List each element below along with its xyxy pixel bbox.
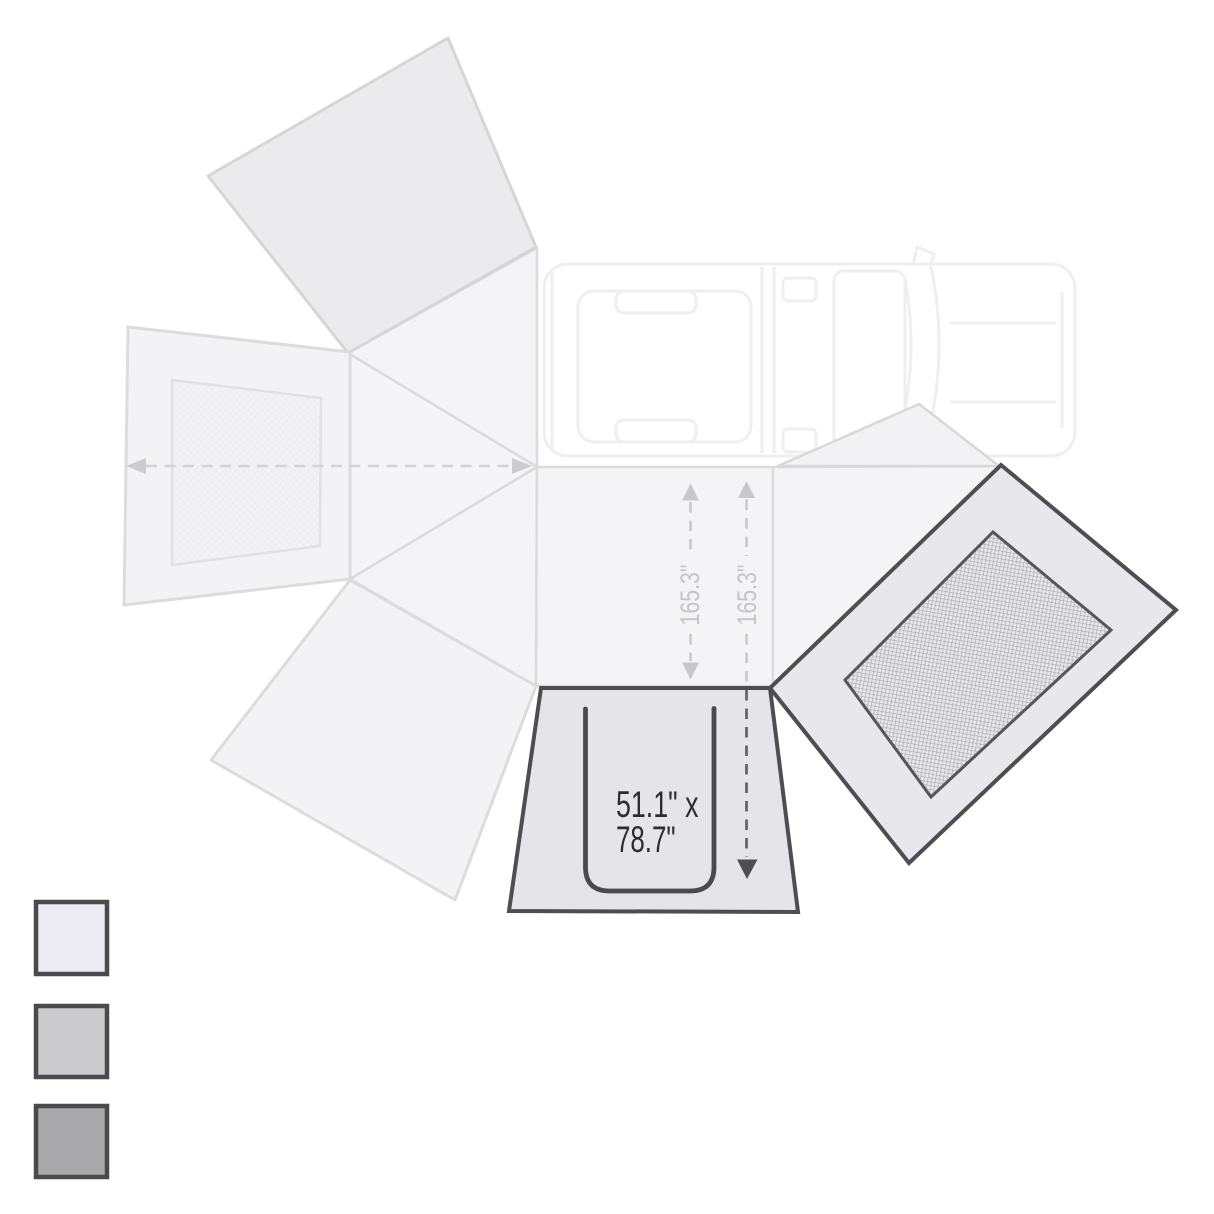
svg-text:78.7": 78.7" [616,819,676,860]
svg-text:165.3": 165.3" [732,565,762,626]
svg-text:165.3": 165.3" [675,565,705,626]
